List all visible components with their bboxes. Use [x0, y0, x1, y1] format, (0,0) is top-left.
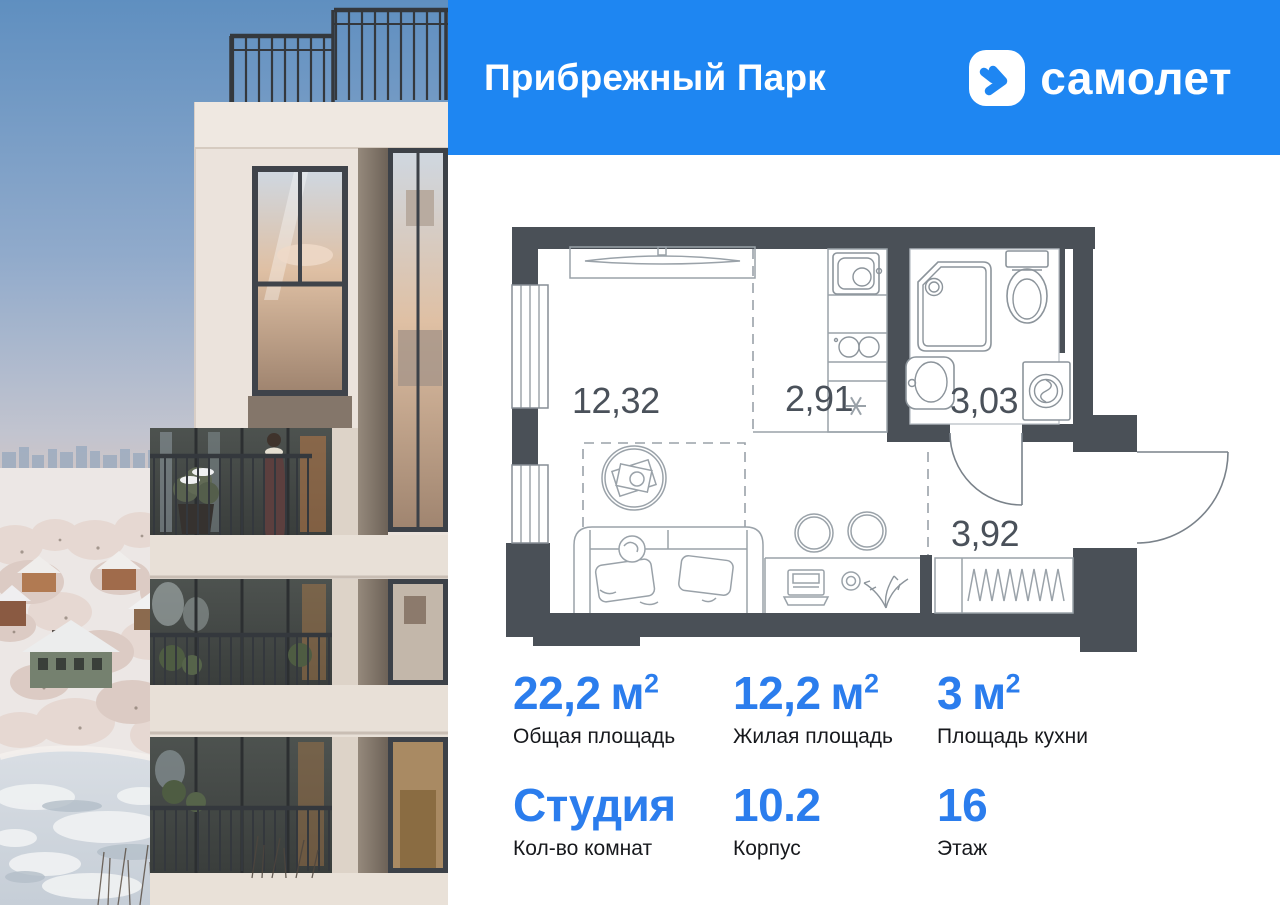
- bathroom: [906, 249, 1070, 505]
- window-top-left: [252, 166, 348, 396]
- stat-rooms-label: Кол-во комнат: [513, 837, 728, 861]
- brand-name: самолет: [1040, 51, 1232, 105]
- balcony-top: [150, 428, 332, 536]
- stove-icon: [835, 337, 880, 357]
- area-label-kitchen: 2,91: [785, 378, 853, 419]
- sleep-zone-dashed: [583, 443, 745, 527]
- samolet-logo-icon: [969, 50, 1025, 106]
- entry-wardrobe: [935, 558, 1073, 613]
- stat-floor: 16 Этаж: [937, 780, 1152, 861]
- stat-kitchen-area-value: 3м2: [937, 668, 1152, 720]
- plant-icon: [864, 576, 908, 608]
- stat-living-area-label: Жилая площадь: [733, 725, 948, 749]
- stat-kitchen-area-label: Площадь кухни: [937, 725, 1152, 749]
- desk: [765, 558, 920, 613]
- bathroom-door: [950, 433, 1022, 505]
- round-table: [602, 446, 666, 510]
- stat-building-label: Корпус: [733, 837, 948, 861]
- area-label-hallway: 3,92: [951, 513, 1019, 554]
- window-2: [512, 465, 548, 543]
- laptop-icon: [784, 570, 828, 605]
- entrance-door: [1137, 452, 1228, 543]
- area-label-bathroom: 3,03: [950, 380, 1018, 421]
- stat-floor-value: 16: [937, 780, 1152, 832]
- building: [150, 10, 448, 905]
- balcony-middle: [150, 579, 332, 685]
- stat-total-area: 22,2м2 Общая площадь: [513, 668, 728, 749]
- listing-card: Прибрежный Парк самолет: [0, 0, 1280, 905]
- stat-rooms-value: Студия: [513, 780, 728, 832]
- facade-pillar: [358, 148, 388, 905]
- bath-sink-icon: [906, 357, 954, 409]
- project-title: Прибрежный Парк: [484, 57, 826, 99]
- stat-total-area-value: 22,2м2: [513, 668, 728, 720]
- brand-logo: самолет: [969, 50, 1232, 106]
- stat-floor-label: Этаж: [937, 837, 1152, 861]
- stat-total-area-label: Общая площадь: [513, 725, 728, 749]
- window-column-right: [388, 148, 448, 873]
- area-label-living: 12,32: [572, 380, 660, 421]
- stat-building: 10.2 Корпус: [733, 780, 948, 861]
- stat-building-value: 10.2: [733, 780, 948, 832]
- spandrel: [248, 396, 352, 428]
- stat-kitchen-area: 3м2 Площадь кухни: [937, 668, 1152, 749]
- shower-icon: [918, 262, 991, 351]
- header: Прибрежный Парк самолет: [448, 0, 1280, 155]
- stat-living-area-value: 12,2м2: [733, 668, 948, 720]
- kitchen-sink-icon: [833, 253, 882, 294]
- toilet-icon: [1006, 251, 1048, 323]
- stat-rooms: Студия Кол-во комнат: [513, 780, 728, 861]
- washing-machine-icon: [1023, 362, 1070, 420]
- building-photo: [0, 0, 448, 905]
- floor-plan: 12,32 2,91 3,03 3,92: [498, 218, 1242, 652]
- stools: [795, 512, 886, 552]
- window-1: [512, 285, 548, 408]
- wardrobe-closet: [570, 247, 755, 278]
- stat-living-area: 12,2м2 Жилая площадь: [733, 668, 948, 749]
- sofa-bed: [574, 527, 763, 613]
- balcony-bottom: [150, 737, 332, 873]
